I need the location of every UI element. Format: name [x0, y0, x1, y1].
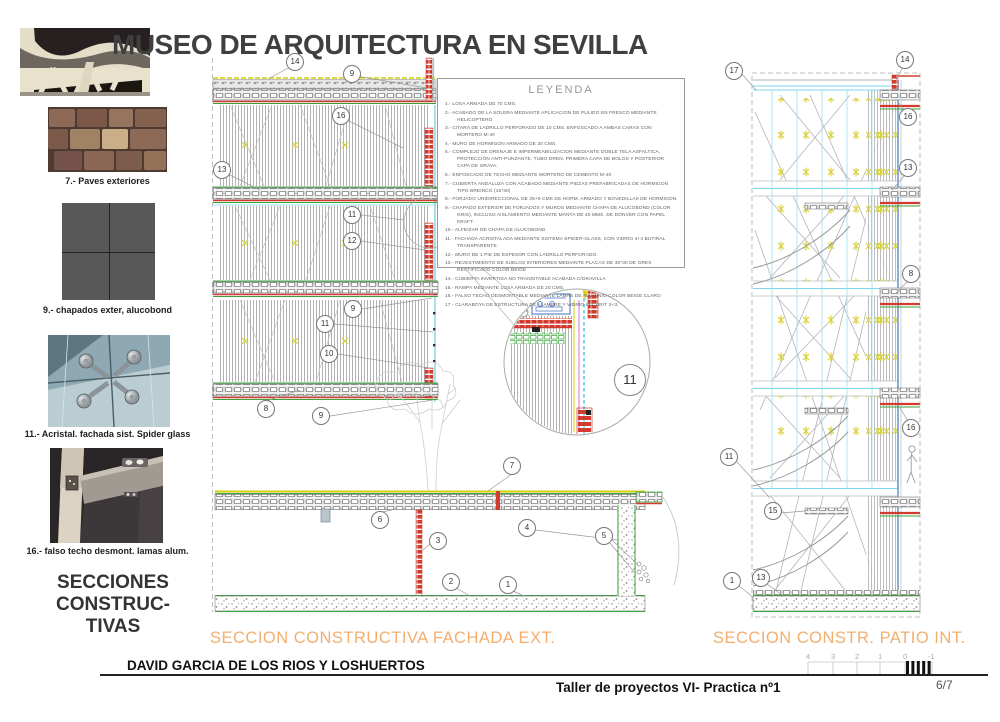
- scale-tick-label: 2: [855, 652, 859, 661]
- page-number: 6/7: [936, 678, 953, 692]
- legend-item: 14.- CUBIERTA INVERTIDA NO TRANSITABLE A…: [445, 277, 678, 284]
- graphic-scale-bar: 4 3 2 1 0 -1: [798, 648, 948, 678]
- legend-item: 7.- CUBIERTA ANDALUZA CON ACABADO MEDIAN…: [445, 182, 678, 196]
- roof-slab: [213, 58, 436, 104]
- scale-tick-label: -1: [928, 652, 935, 661]
- sections-title-line: SECCIONES: [38, 572, 188, 594]
- facade-drawing-title: SECCION CONSTRUCTIVA FACHADA EXT.: [210, 629, 555, 648]
- scale-tick-label: 3: [831, 652, 835, 661]
- legend-item: 16.- FALSO TECHO DESMONTABLE MEDIANTE LA…: [445, 294, 678, 301]
- legend-item: 17.- CLARABOYA DE ESTRUCTURA DE ALAMBRE …: [445, 303, 678, 310]
- gravel-drain: [637, 562, 650, 583]
- legend-item: 11.- FACHADA ACRISTALADA MEDIANTE SISTEM…: [445, 237, 678, 251]
- patio-ground-slab: [753, 590, 920, 612]
- sheet: { "title": "MUSEO DE ARQUITECTURA EN SEV…: [0, 0, 1000, 722]
- page-title: MUSEO DE ARQUITECTURA EN SEVILLA: [112, 29, 648, 61]
- pavers-photo-label: 7.- Paves exteriores: [30, 176, 185, 186]
- patio-section-drawing: [720, 50, 950, 630]
- author-name: DAVID GARCIA DE LOS RIOS Y LOSHUERTOS: [127, 658, 425, 673]
- facade-wall-storeys: [220, 105, 435, 402]
- scale-tick-label: 0: [903, 652, 907, 661]
- sections-title-line: TIVAS: [38, 616, 188, 638]
- ceiling-photo: [50, 448, 163, 543]
- legend-item: 15.- RAMPA MEDIANTE LOSA ARMADA DE 20 CM…: [445, 286, 678, 293]
- course-title: Taller de proyectos VI- Practica nº1: [556, 680, 781, 695]
- basement-column: [416, 510, 422, 596]
- legend-item: 9.- CHAPADO EXTERIOR DE FORJADOS Y MUROS…: [445, 206, 678, 227]
- legend-item: 8.- FORJADO UNIDIRECCIONAL DE 25+5 CMS D…: [445, 197, 678, 204]
- scale-tick-label: 4: [806, 652, 810, 661]
- scale-bar-blocks: [906, 661, 931, 674]
- legend-item: 6.- ENFOSCADO DE TECHO MEDIANTE MORTERO …: [445, 173, 678, 180]
- legend-item: 2.- ACABADO DE LA SOLERA MEDIANTE APLICA…: [445, 111, 678, 125]
- alucobond-photo: [62, 203, 155, 300]
- spider-glass-photo: [48, 335, 170, 427]
- legend-items: 1.- LOSA ARMADA DE 70 CMS.2.- ACABADO DE…: [445, 102, 678, 310]
- patio-drawing-title: SECCION CONSTR. PATIO INT.: [713, 629, 966, 648]
- legend-item: 5.- COMPLEJO DE DRENAJE E IMPERMEABILIZA…: [445, 150, 678, 171]
- human-figure: [907, 446, 917, 483]
- legend-item: 10.- ALFEIZAR DE CHAPA DE ALUCOBOND: [445, 228, 678, 235]
- scale-tick-label: 1: [878, 652, 882, 661]
- legend-item: 12.- MURO DE 1 PIE DE ESPESOR CON LADRIL…: [445, 253, 678, 260]
- pavers-photo: [48, 107, 167, 172]
- ground-basement-section: [215, 491, 679, 612]
- spider-glass-photo-label: 11.- Acristal. fachada sist. Spider glas…: [20, 429, 195, 439]
- sections-title-line: CONSTRUC-: [38, 594, 188, 616]
- ceiling-photo-label: 16.- falso techo desmont. lamas alum.: [20, 546, 195, 556]
- legend-item: 3.- CITARA DE LADRILLO PERFORADO DE 10 C…: [445, 126, 678, 140]
- legend-item: 1.- LOSA ARMADA DE 70 CMS.: [445, 102, 678, 109]
- alucobond-photo-label: 9.- chapados exter, alucobond: [25, 305, 190, 315]
- sections-constructivas-title: SECCIONES CONSTRUC- TIVAS: [38, 572, 188, 638]
- legend-item: 13.- REVESTIMIENTO DE SUELOS INTERIORES …: [445, 261, 678, 275]
- legend-title: LEYENDA: [438, 84, 684, 96]
- alucobond-joint-horizontal: [62, 252, 155, 253]
- legend-item: 4.- MURO DE HORMIGON ARMADO DE 30 CMS.: [445, 142, 678, 149]
- retaining-wall: [617, 505, 636, 596]
- legend-box: LEYENDA 1.- LOSA ARMADA DE 70 CMS.2.- AC…: [437, 78, 685, 268]
